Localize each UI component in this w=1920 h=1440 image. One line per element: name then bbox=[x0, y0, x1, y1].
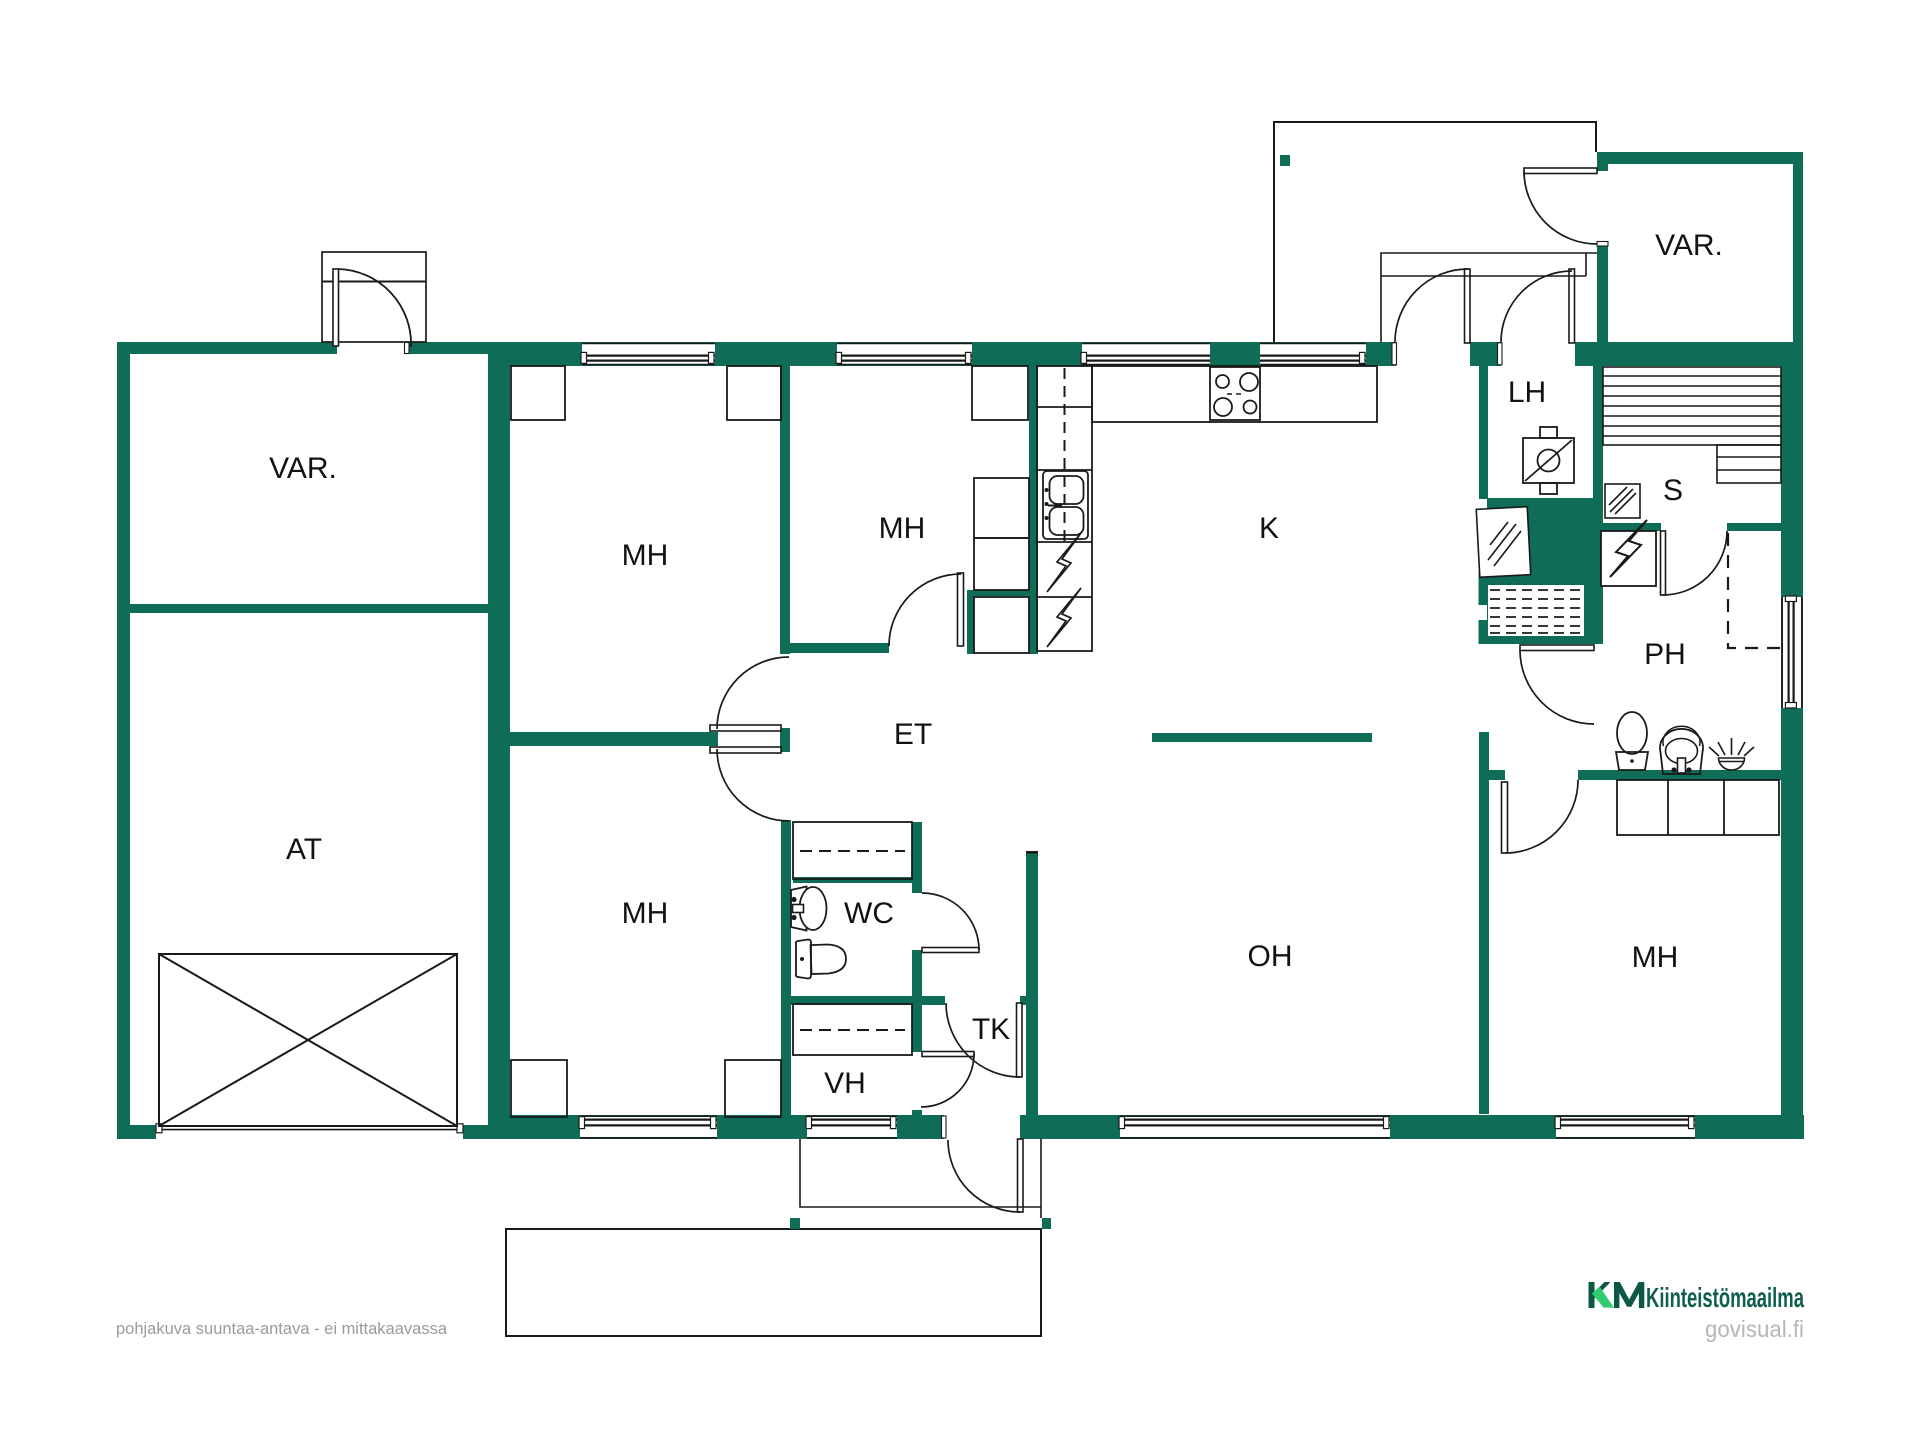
svg-text:VAR.: VAR. bbox=[1655, 229, 1723, 262]
svg-text:pohjakuva suuntaa-antava - ei: pohjakuva suuntaa-antava - ei mittakaava… bbox=[116, 1320, 448, 1338]
svg-text:AT: AT bbox=[286, 833, 322, 866]
svg-text:S: S bbox=[1663, 474, 1683, 507]
svg-text:TK: TK bbox=[972, 1013, 1010, 1046]
svg-text:govisual.fi: govisual.fi bbox=[1705, 1316, 1804, 1342]
svg-text:Kiinteistömaailma: Kiinteistömaailma bbox=[1646, 1282, 1804, 1313]
svg-text:PH: PH bbox=[1644, 638, 1686, 671]
svg-text:K: K bbox=[1259, 512, 1279, 545]
svg-text:VAR.: VAR. bbox=[269, 452, 337, 485]
svg-text:ET: ET bbox=[894, 718, 932, 751]
svg-text:MH: MH bbox=[1632, 941, 1679, 974]
svg-text:MH: MH bbox=[622, 897, 669, 930]
svg-text:MH: MH bbox=[622, 539, 669, 572]
svg-text:LH: LH bbox=[1508, 376, 1546, 409]
svg-text:MH: MH bbox=[879, 512, 926, 545]
svg-text:WC: WC bbox=[844, 897, 894, 930]
svg-text:OH: OH bbox=[1248, 940, 1293, 973]
svg-text:VH: VH bbox=[824, 1067, 866, 1100]
